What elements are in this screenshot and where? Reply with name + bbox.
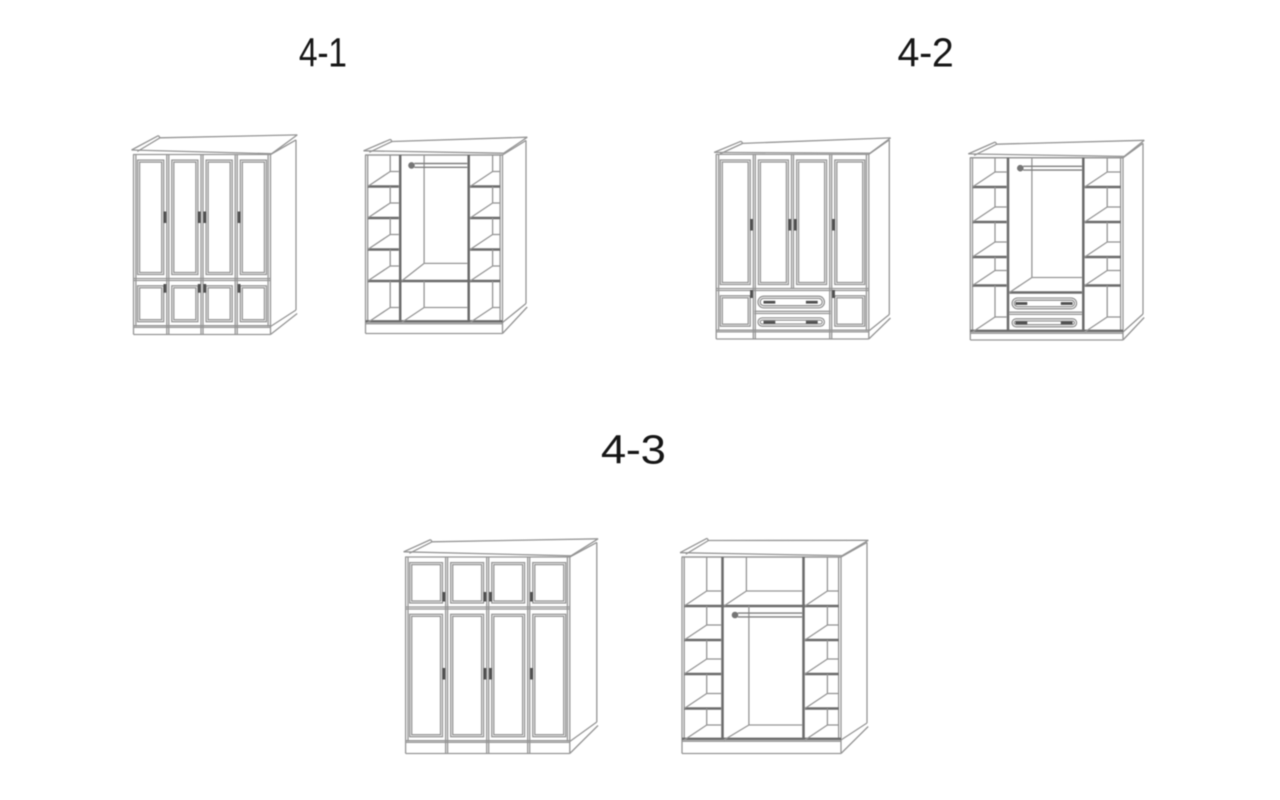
svg-text:4-3: 4-3 — [601, 428, 666, 473]
svg-text:4-1: 4-1 — [299, 29, 347, 75]
svg-text:4-2: 4-2 — [897, 30, 953, 76]
